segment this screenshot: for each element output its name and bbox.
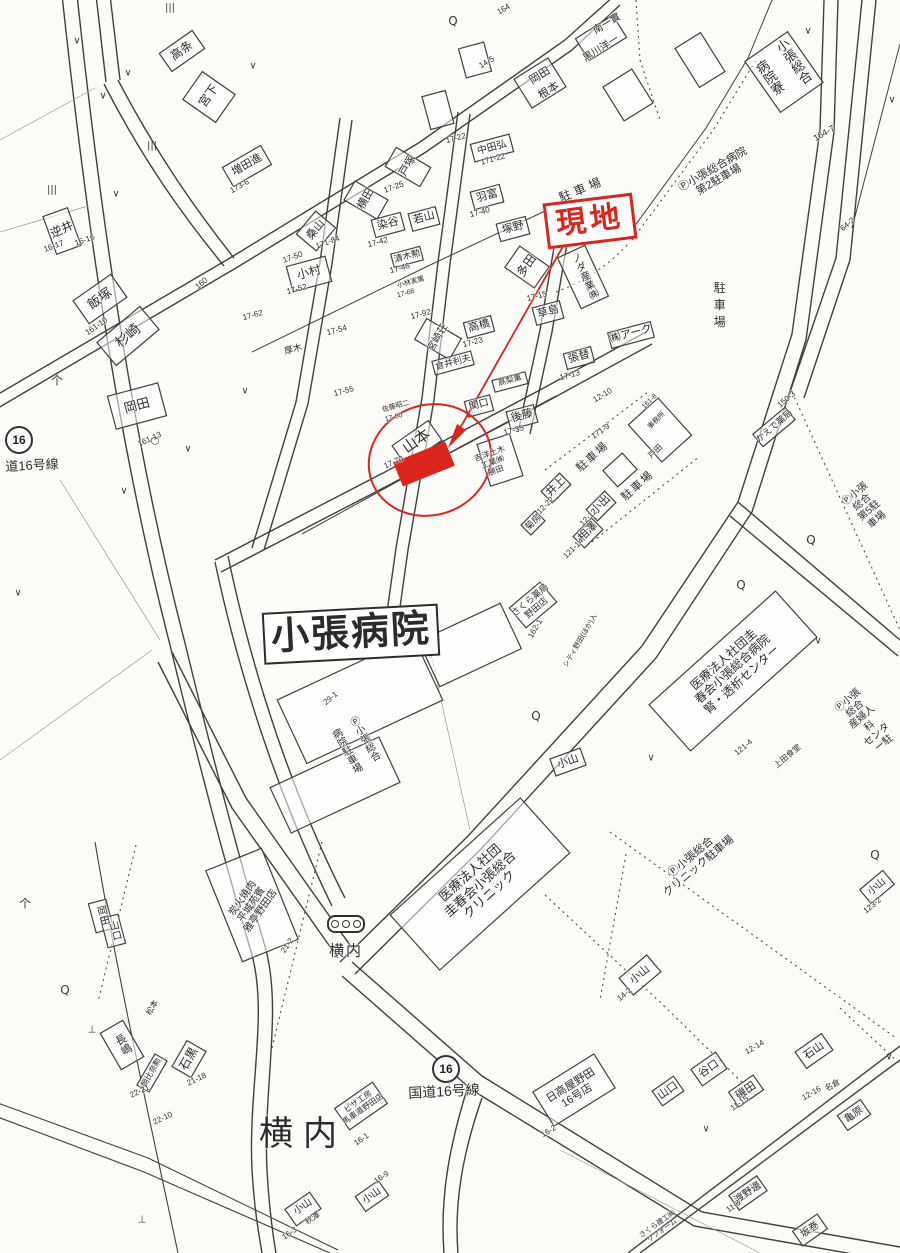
map-symbol-circle: ○ — [151, 436, 160, 447]
map-label: 17-35 — [503, 424, 525, 438]
map-label: 若山 — [412, 209, 436, 227]
map-label: 64-2 — [839, 216, 857, 233]
map-label: 22-10 — [152, 1111, 174, 1128]
map-label: シティ野田(ほか)入 — [563, 613, 600, 669]
map-symbol-field: ||| — [165, 3, 175, 14]
map-symbol-tree: Q — [736, 578, 745, 592]
map-label: 17-52 — [286, 283, 308, 297]
map-symbol-check: ∨ — [99, 91, 106, 102]
map-label: Ⓟ小張総合病院 第2駐車場 — [677, 145, 756, 205]
map-label: 16-16 — [74, 233, 96, 248]
map-symbol-check: ∨ — [885, 1052, 892, 1063]
map-label: 121-14 — [562, 537, 586, 561]
map-label: 杉崎 — [112, 321, 144, 351]
map-label: 173-6 — [229, 178, 251, 196]
map-symbol-check: ∨ — [73, 36, 80, 47]
map-label: 17-42 — [367, 236, 389, 250]
map-symbol-tree: Q — [806, 533, 815, 547]
map-label: 駐車場 — [713, 282, 726, 333]
map-label: 亀原 — [843, 1105, 866, 1126]
map-label: 山本 — [400, 427, 434, 458]
map-label: ㈱アーク — [608, 322, 653, 345]
map-label: 小山 — [556, 752, 581, 771]
map-symbol-check: ∨ — [120, 486, 127, 497]
map-label: 張替 — [567, 348, 591, 366]
map-label: 17-70 — [383, 455, 405, 472]
map-label: 171-9 — [590, 422, 612, 441]
map-label: 16-2 — [540, 1124, 558, 1140]
map-label: 14-5 — [478, 55, 496, 71]
map-label: 17-46 — [389, 262, 411, 276]
map-label: 17-55 — [333, 385, 355, 399]
map-symbol-check: ∨ — [112, 189, 119, 200]
map-label: Ⓟ小張総合 産婦人科 センター駐 — [831, 685, 900, 758]
map-label: 高橋 — [467, 317, 491, 335]
map-label: 小山 — [628, 963, 653, 987]
map-label: 松本 — [145, 999, 161, 1017]
map-label: 高条 — [168, 39, 195, 64]
map-label: 17-80 — [384, 412, 403, 424]
map-label: 山口 — [105, 920, 120, 942]
map-label: 山口 — [655, 1080, 680, 1103]
map-label: 12-16 — [801, 1085, 823, 1103]
map-symbol-tree: Q — [60, 983, 69, 997]
map-label: 事務所 — [647, 411, 667, 431]
map-label: 駐車場 — [619, 468, 656, 503]
map-label: 小山 — [866, 876, 889, 897]
map-label: 塚野 — [501, 219, 525, 237]
map-label: 南一實 — [591, 11, 622, 36]
map-label: 吉洋土木 工業㈱ 勝田 — [473, 445, 512, 481]
map-symbol-tower: 个 — [19, 895, 31, 912]
map-label: 17-40 — [469, 206, 491, 220]
map-label: 14-2 — [616, 986, 634, 1003]
map-label: 飯塚 — [85, 286, 115, 313]
map-label: 12-22 — [536, 496, 557, 517]
map-label: 道16号線 — [5, 457, 59, 474]
map-label: 161-10 — [84, 316, 110, 338]
map-label: 164 — [496, 3, 512, 17]
map-symbol-tree: Q — [870, 848, 879, 862]
map-label: 17-22 — [445, 132, 467, 146]
map-symbol-check: ∨ — [124, 68, 131, 79]
map-label: 11-15 — [729, 1095, 750, 1114]
map-label: 17-15 — [526, 290, 548, 304]
map-label: さくら建工㈱ リフォーム — [638, 1210, 681, 1247]
map-label: さくら薬局 野田店 — [509, 582, 556, 626]
map-label: 160 — [194, 276, 210, 291]
map-label: 17-92 — [410, 308, 432, 322]
map-label: 横田 — [355, 186, 377, 211]
map-label: 171-84 — [315, 235, 341, 252]
map-label: 日高屋野田 16号店 — [544, 1066, 604, 1116]
map-symbol-check: ∨ — [184, 444, 191, 455]
map-symbol-check: ∨ — [14, 588, 21, 599]
map-label: 倉井利夫 — [434, 352, 471, 371]
map-label: 染谷 — [376, 215, 400, 233]
map-label: 宮崎荘 — [426, 322, 451, 354]
map-symbol-check: ∨ — [249, 61, 256, 72]
map-label: 16-3 — [281, 1226, 299, 1243]
map-label: 草島 — [536, 303, 560, 321]
map-label: 病院寮 — [752, 58, 786, 98]
map-symbol-tower: 个 — [51, 372, 63, 389]
map-label: 増田進 — [230, 151, 265, 178]
map-label: ピザ工房 馬車道野田店 — [336, 1085, 386, 1127]
map-label: 16-17 — [43, 239, 65, 254]
map-label: 黒川洋一 — [581, 34, 621, 65]
map-label: 12-10 — [592, 387, 614, 405]
map-symbol-check: ∨ — [241, 386, 248, 397]
map-label: 17-25 — [383, 180, 405, 195]
map-label: 16-1 — [353, 1132, 371, 1149]
map-symbol-field: ||| — [47, 185, 57, 196]
map-label: ノダ産業㈱ — [568, 252, 599, 302]
map-label: Ⓟ小張総合 クリニック駐車場 — [653, 824, 736, 899]
map-label: 横内 — [259, 1115, 347, 1153]
map-symbol-tree: Q — [448, 14, 457, 28]
map-label: 石山 — [801, 1040, 826, 1063]
map-label: 戸塚 — [397, 153, 419, 178]
map-label: 21-18 — [186, 1072, 208, 1089]
site-label: 現地 — [543, 193, 638, 250]
map-label: 161-8 — [641, 393, 659, 411]
map-label: 戸田 — [647, 443, 665, 461]
map-label: 高梨薫 — [497, 374, 522, 389]
map-symbol-check: ∨ — [804, 26, 811, 37]
map-label: 12-14 — [744, 1039, 766, 1057]
map-canvas: 飯塚161-10岡田161-13高条宮下増田進173-6逆井16-1716-16… — [0, 0, 900, 1253]
map-symbol-check: ∨ — [888, 95, 895, 106]
map-label: 根本 — [536, 80, 561, 102]
route16-shield-west: 16 — [5, 426, 33, 454]
map-label: 29-1 — [322, 690, 340, 707]
map-label: 多田 — [515, 252, 540, 279]
map-label: 16-9 — [373, 1170, 391, 1187]
map-label: 162-1 — [527, 618, 545, 640]
map-label: 坂巻 — [799, 1220, 822, 1241]
map-label: 123-2 — [862, 896, 883, 916]
map-label: 厚木 — [283, 342, 303, 356]
map-label: 羽富 — [475, 187, 499, 205]
map-label: 長嶋 — [112, 1033, 133, 1058]
map-label: 岡田 — [123, 396, 152, 417]
map-label: 逆井 — [48, 219, 75, 241]
map-label: 炭火焼肉 平城苑賓 雅亭野田店 — [224, 875, 280, 935]
map-label: 宮下 — [197, 82, 222, 109]
map-symbol-check: ∨ — [647, 753, 654, 764]
map-symbol-check: ∨ — [814, 636, 821, 647]
map-label: 上田食堂 — [773, 743, 803, 770]
map-symbol-bench: ⊥ — [138, 1215, 147, 1226]
map-label: 121-4 — [733, 738, 754, 758]
map-label: 17-62 — [242, 309, 264, 323]
route16-shield-south: 16 — [432, 1055, 460, 1083]
map-label: 164-7 — [812, 123, 837, 143]
map-symbol-field: ||| — [147, 141, 157, 152]
map-label: 17-50 — [282, 250, 304, 265]
map-label: 医療法人社団圭 春会小張総合病院 腎・透析センター — [684, 623, 782, 717]
map-label: 関口 — [468, 397, 490, 413]
map-label: 石黒 — [177, 1045, 201, 1073]
map-label: 17-23 — [462, 336, 484, 350]
map-label: 17-54 — [326, 324, 348, 338]
map-symbol-check: ∨ — [702, 1124, 709, 1135]
traffic-signal-icon — [327, 915, 365, 933]
map-label: 横内 — [329, 944, 363, 961]
map-label: 谷口 — [696, 1058, 721, 1081]
map-symbol-tree: Q — [531, 709, 540, 723]
map-label: 22-21 — [129, 1084, 151, 1101]
map-label: 国道16号線 — [408, 1082, 480, 1101]
map-label: 17-13 — [559, 369, 581, 383]
map-label: 駐車場 — [574, 439, 611, 474]
map-label: 秋澤 — [304, 1211, 322, 1228]
map-symbol-bench: ⊥ — [88, 1025, 97, 1036]
map-label: かえで薬局 — [754, 408, 795, 444]
map-label: 小山 — [361, 1186, 384, 1207]
map-label: Ⓟ小張総合 第5駐車場 — [839, 479, 894, 535]
map-label: 名倉 — [824, 1078, 842, 1094]
map-label: 小村 — [296, 263, 323, 282]
map-label: 21-2 — [280, 937, 297, 955]
map-label: 小張病院 — [262, 604, 440, 665]
map-label: 医療法人社団 圭春会小張総合 クリニック — [432, 837, 529, 930]
